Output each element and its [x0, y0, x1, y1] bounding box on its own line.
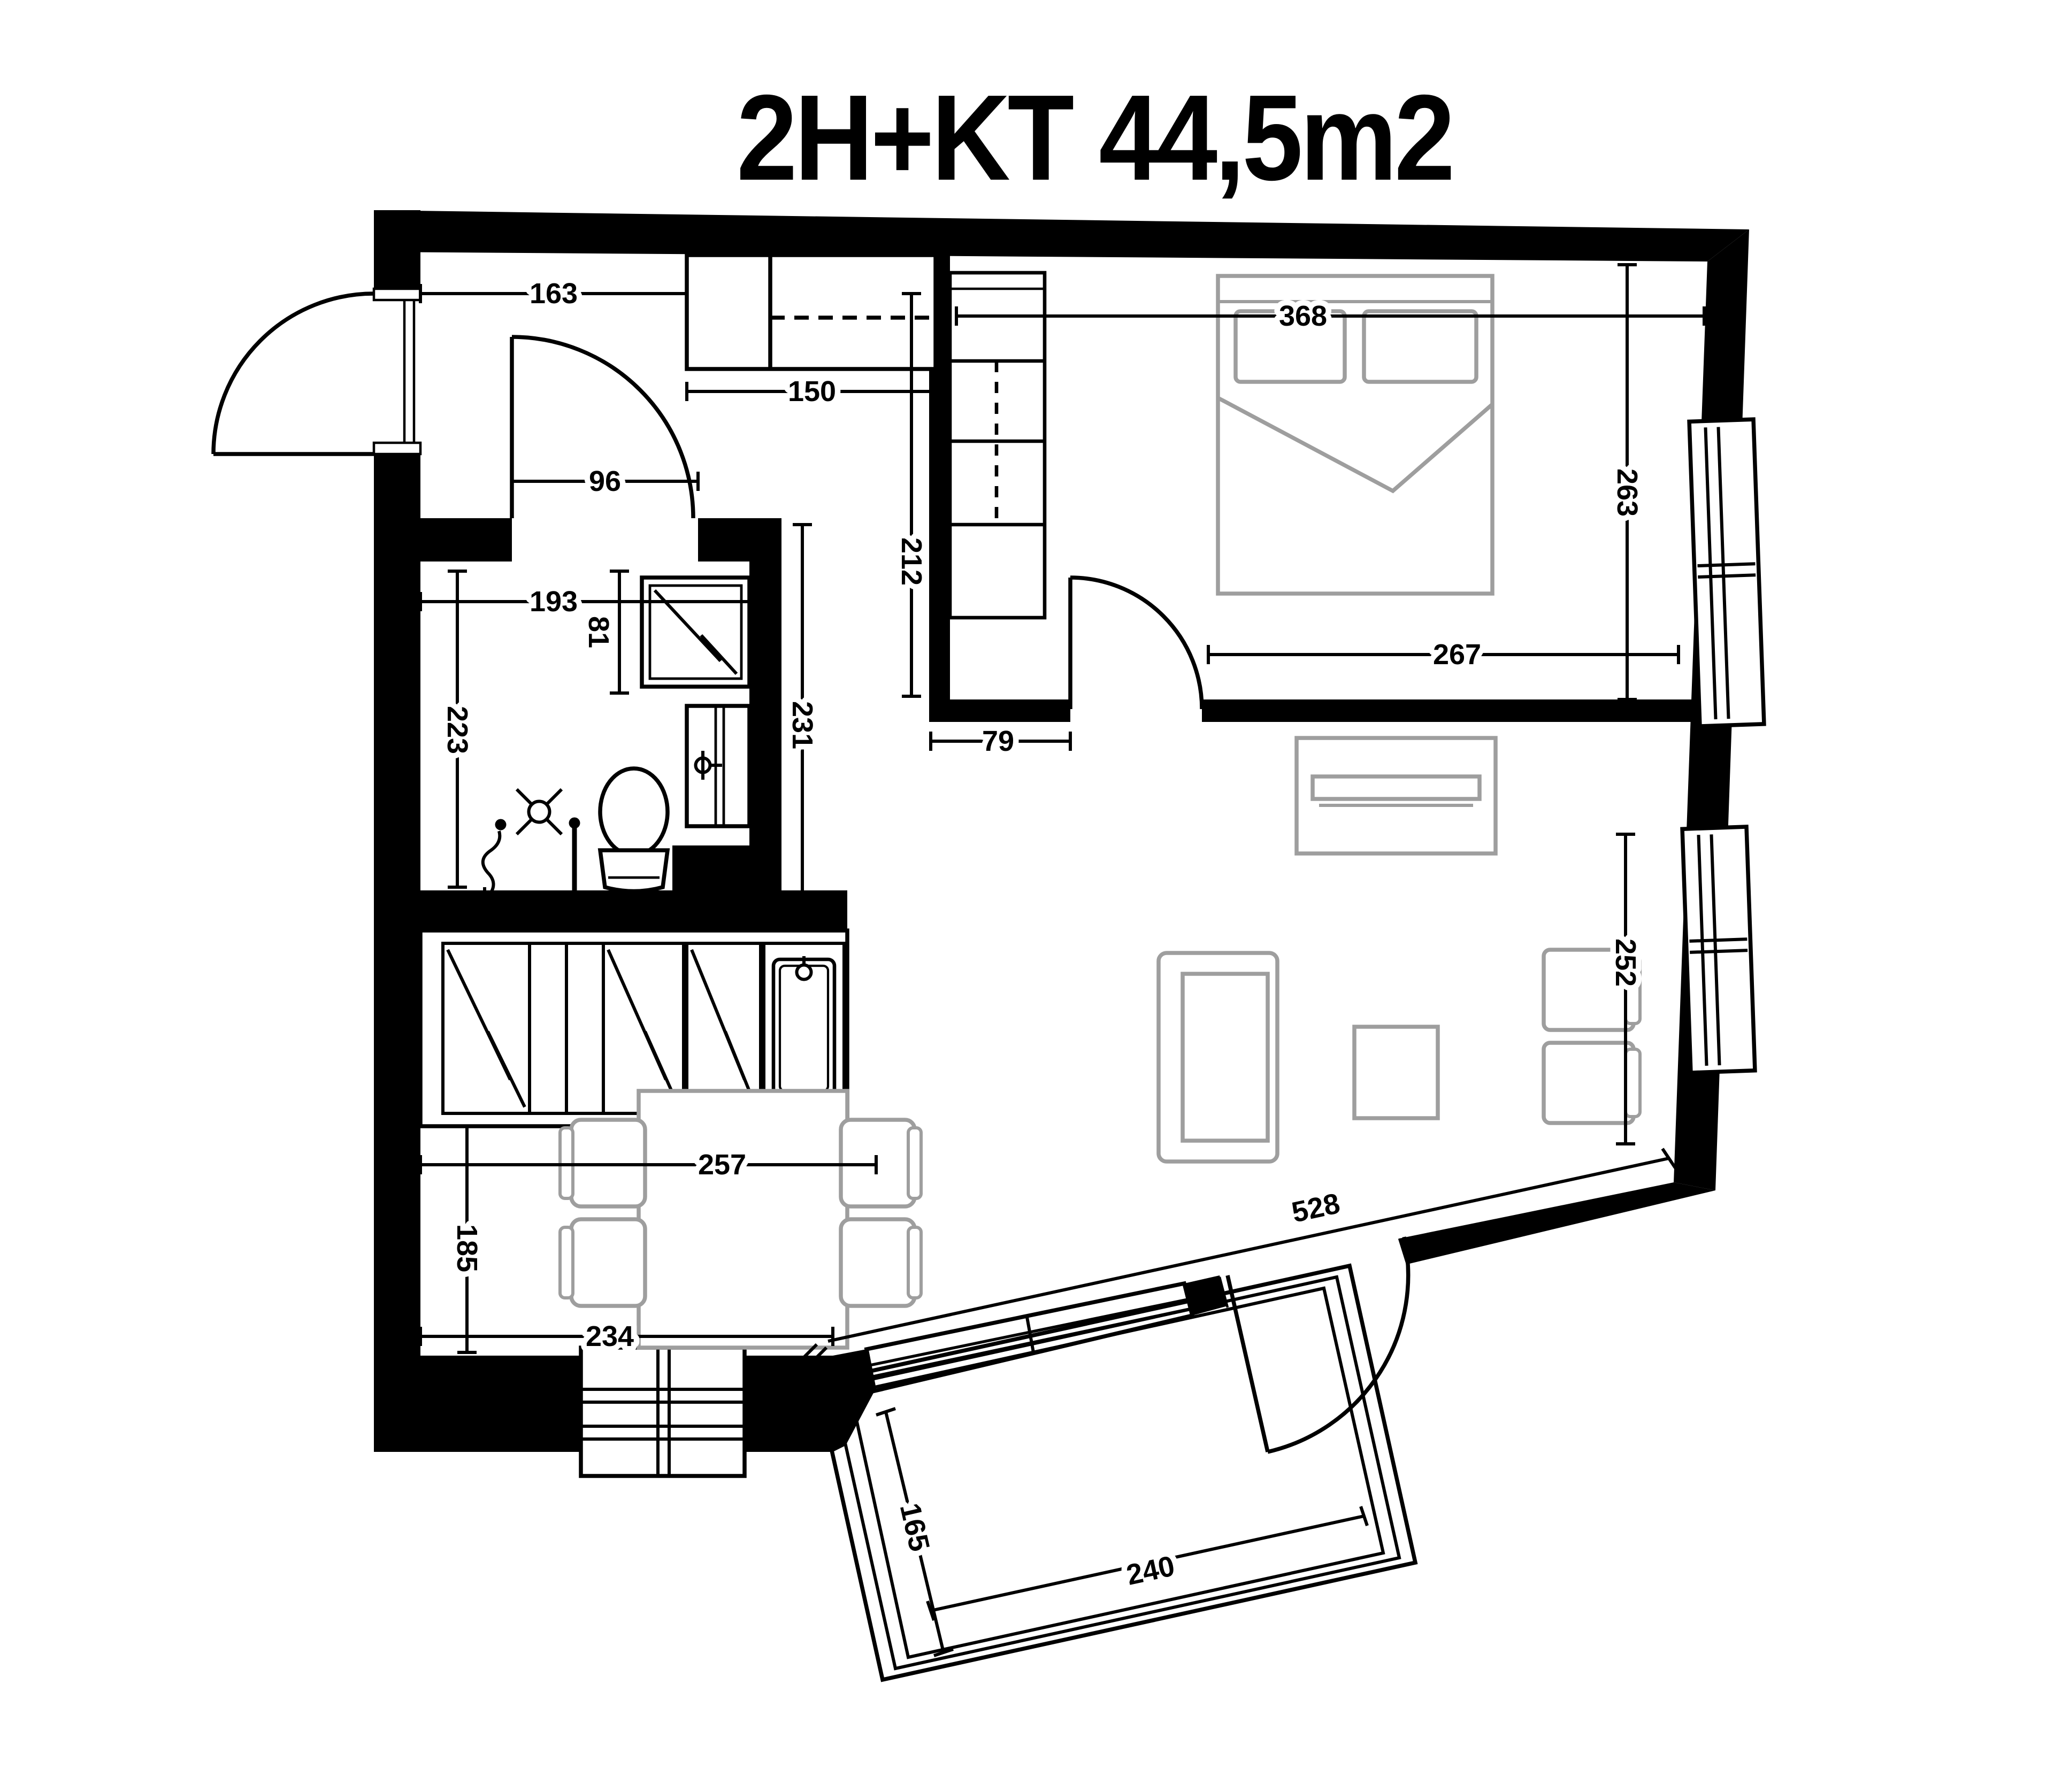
toilet-icon [600, 768, 668, 891]
dim-kitchen-cabinets: 150 [687, 375, 936, 407]
coffee-table-icon [1354, 1027, 1438, 1118]
dim-label: 212 [895, 537, 928, 586]
dim-bedroom-bottom: 267 [1208, 639, 1679, 671]
dim-label: 252 [1610, 939, 1642, 987]
dim-balcony-depth: 165 [876, 1409, 953, 1656]
wall-left-main [374, 454, 420, 1452]
wall-left-upper [374, 210, 420, 289]
dim-label: 267 [1433, 639, 1481, 671]
sideboard-tv-icon [1297, 738, 1496, 853]
dining-chair-icon [560, 1219, 645, 1306]
wall-bathroom-top-left [420, 518, 512, 562]
floor-drain-icon [517, 789, 562, 834]
dim-label: 150 [788, 375, 836, 407]
dim-label: 185 [451, 1224, 483, 1272]
dim-label: 528 [1289, 1187, 1343, 1229]
wall-slope-c [1399, 1182, 1715, 1264]
dim-bathroom-door: 96 [512, 465, 698, 497]
dim-label: 263 [1611, 468, 1643, 517]
dim-label: 193 [530, 586, 578, 618]
dim-label: 368 [1279, 300, 1327, 332]
dim-label: 240 [1124, 1550, 1178, 1591]
shower-icon [642, 578, 749, 687]
dim-label: 165 [894, 1500, 936, 1554]
dim-entry-width: 163 [420, 278, 687, 310]
dim-bedroom-left-wall: 79 [931, 725, 1070, 757]
wall-bedroom-bottom-left [929, 699, 1070, 722]
appliance-icon [603, 943, 684, 1113]
living-window [1682, 827, 1755, 1073]
wall-bottom-left-a [374, 1356, 581, 1452]
bedroom-window [1689, 419, 1764, 726]
dim-living-diagonal: 528 [798, 1149, 1675, 1367]
wall-bathroom-right [749, 518, 781, 890]
balcony-railing-mid [833, 1277, 1399, 1668]
dim-label: 223 [441, 706, 473, 754]
dim-dining-depth: 185 [451, 1126, 483, 1352]
bathroom-sink-icon [687, 706, 749, 826]
dim-label: 234 [586, 1320, 634, 1352]
wall-top [374, 210, 1749, 262]
sofa-icon [1159, 953, 1277, 1162]
bed-icon [1218, 276, 1492, 594]
dim-bedroom-depth: 263 [1611, 265, 1643, 699]
kitchen-sink-icon [764, 943, 844, 1113]
dim-label: 231 [786, 701, 818, 749]
page-title: 2H+KT 44,5m2 [737, 70, 1452, 206]
dim-label: 257 [698, 1149, 746, 1181]
dim-label: 79 [982, 725, 1014, 757]
dining-window [581, 1348, 745, 1476]
wardrobe [950, 273, 1045, 618]
bedroom-door [1070, 578, 1202, 709]
dim-label: 96 [589, 465, 621, 497]
dining-table-icon [639, 1091, 847, 1348]
appliance-icon [443, 943, 530, 1113]
cabinet-panel [530, 943, 603, 1113]
dim-label: 81 [583, 616, 615, 648]
entry-door [213, 289, 420, 454]
balcony-door [1220, 1237, 1408, 1452]
kitchen-upper-cabinets [687, 255, 936, 369]
dim-label: 163 [530, 278, 578, 310]
wall-bathroom-bottom [374, 890, 847, 930]
dim-kitchen-wall: 231 [786, 525, 818, 926]
wall-bedroom-bottom-right [1202, 699, 1691, 722]
dim-bathroom-depth: 223 [441, 571, 473, 887]
appliance-icon [687, 943, 761, 1113]
wall-bathroom-notch [672, 845, 749, 890]
kitchen [420, 255, 936, 1126]
dining-chair-icon [841, 1219, 921, 1306]
dim-shower: 81 [583, 571, 629, 693]
floor-plan: 2H+KT 44,5m2 [0, 0, 2054, 1792]
